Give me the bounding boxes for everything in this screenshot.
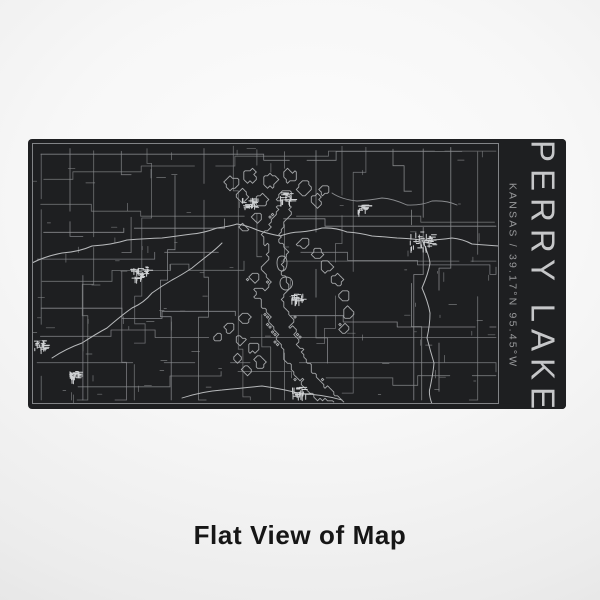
map-title: PERRY LAKE (526, 139, 559, 409)
map-subtitle: KANSAS / 39.17°N 95.45°W (506, 180, 518, 368)
map-title-block: PERRY LAKE KANSAS / 39.17°N 95.45°W (499, 139, 566, 409)
engraved-map-panel: PERRY LAKE KANSAS / 39.17°N 95.45°W (28, 139, 566, 409)
view-caption: Flat View of Map (0, 520, 600, 551)
product-backdrop: PERRY LAKE KANSAS / 39.17°N 95.45°W Flat… (0, 0, 600, 600)
map-graphic (32, 143, 499, 404)
